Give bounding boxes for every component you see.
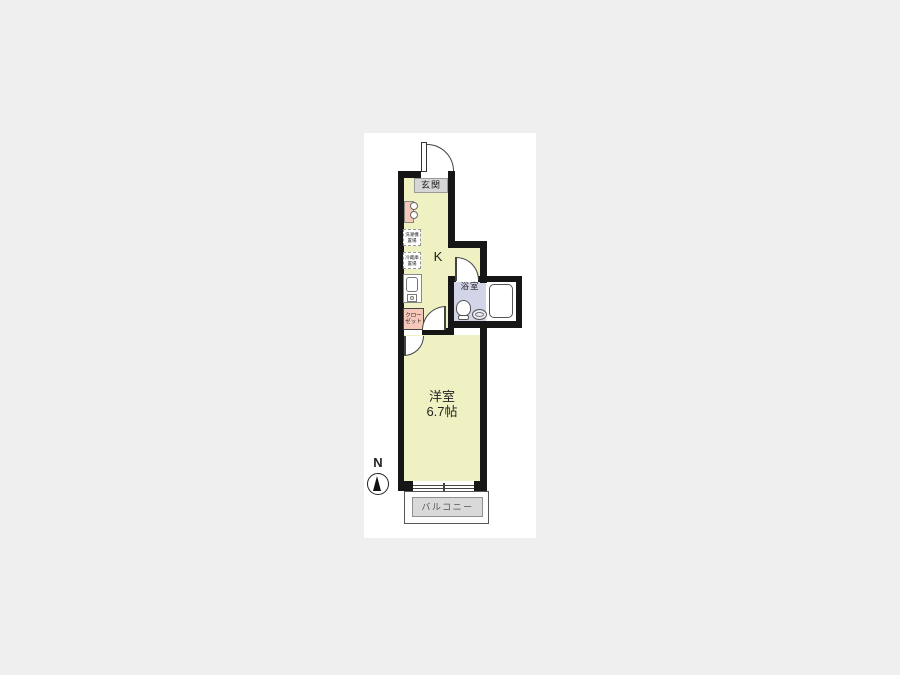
- wall-bathroom-right: [516, 276, 522, 327]
- room-door-leaf: [444, 306, 446, 330]
- entrance-door-leaf: [421, 142, 427, 172]
- wall-right-lower: [480, 321, 487, 491]
- kitchen-label-wrap: K: [428, 248, 448, 266]
- wall-bathroom-left: [448, 276, 454, 328]
- closet-label-line2: ゼット: [405, 319, 422, 325]
- western-room-size: 6.7帖: [426, 405, 457, 420]
- washer-label-line2: 置場: [408, 238, 417, 243]
- toilet-base: [458, 315, 469, 320]
- closet: クロー ゼット: [403, 308, 424, 330]
- window-center-mullion: [443, 483, 445, 491]
- wall-right-upper: [448, 171, 455, 248]
- wall-bottom-left-corner: [398, 481, 413, 491]
- bathtub: [489, 284, 513, 318]
- compass-north-label-wrap: N: [367, 455, 389, 471]
- balcony: バルコニー: [404, 491, 489, 524]
- compass-icon: [367, 473, 389, 495]
- balcony-label: バルコニー: [421, 502, 473, 512]
- entrance-area: 玄関: [414, 178, 448, 193]
- cabinet-scallop-top: [410, 202, 418, 210]
- bathroom-sink: [472, 309, 487, 320]
- bathroom-label: 浴室: [460, 282, 479, 292]
- western-room-label-wrap: 洋室 6.7帖: [412, 388, 472, 422]
- fridge-label-line2: 置場: [408, 261, 417, 266]
- sink-basin: [475, 312, 484, 317]
- compass-needle: [373, 476, 381, 491]
- entrance-label: 玄関: [421, 180, 441, 190]
- kitchen-sink: [406, 277, 418, 292]
- floorplan-page: 玄関 洗濯機 置場 冷蔵庫 置場 クロー ゼット K 浴室 洋室: [0, 0, 900, 675]
- bathroom-door-leaf: [455, 257, 457, 281]
- bathroom-label-wrap: 浴室: [456, 281, 484, 293]
- refrigerator-space: 冷蔵庫 置場: [403, 252, 421, 269]
- washing-machine-space: 洗濯機 置場: [403, 229, 421, 246]
- kitchen-stove: [407, 294, 417, 302]
- closet-door-leaf: [404, 336, 406, 356]
- compass-north-label: N: [373, 456, 382, 471]
- wall-top-left: [398, 171, 421, 178]
- stove-burner: [410, 296, 414, 300]
- kitchen-label: K: [434, 250, 443, 265]
- window-opening: [413, 481, 474, 491]
- cabinet-scallop-bottom: [410, 211, 418, 219]
- toilet: [456, 300, 471, 316]
- balcony-label-box: バルコニー: [412, 497, 483, 517]
- kitchen-unit: [403, 274, 422, 303]
- wall-bottom-right-corner: [474, 481, 487, 491]
- western-room-label: 洋室: [429, 390, 455, 405]
